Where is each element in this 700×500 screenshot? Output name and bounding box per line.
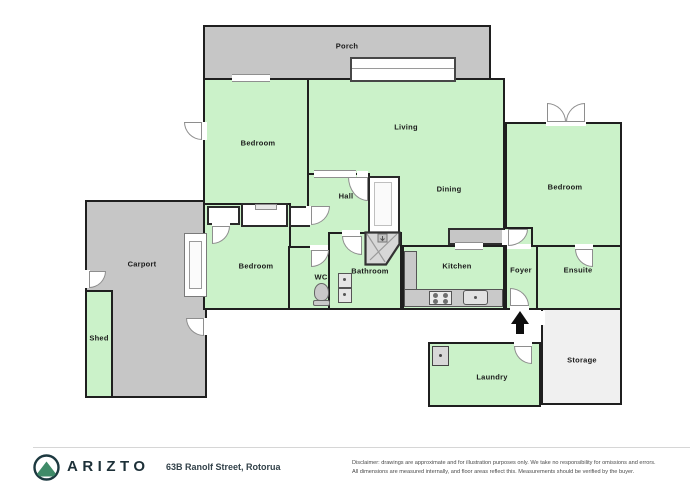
laundry-tub-icon [432,346,449,366]
cooktop-icon [429,291,452,305]
window-icon [455,242,483,250]
window-icon [232,74,270,82]
room-label-hall: Hall [339,192,354,201]
disclaimer-line-1: Disclaimer: drawings are approximate and… [352,459,672,468]
room-label-ensuite: Ensuite [564,266,593,275]
kitchen-counter-bottom [404,289,503,307]
burner-icon [433,293,438,298]
carport-window-pane [189,241,202,289]
property-address: 63B Ranolf Street, Rotorua [166,462,281,472]
disclaimer-text: Disclaimer: drawings are approximate and… [352,459,672,476]
room-label-bedroom-top-left: Bedroom [241,139,276,148]
brand-name: ARIZTO [67,458,150,475]
room-label-living: Living [394,123,418,132]
brand-logo-icon [33,454,60,481]
room-label-carport: Carport [128,260,157,269]
burner-icon [433,299,438,304]
floor-plan: Porch Bedroom Living Dining Hall Bedroom… [0,0,700,500]
cupboard-shelf [374,182,392,226]
room-label-storage: Storage [567,356,597,365]
disclaimer-line-2: All dimensions are measured internally, … [352,468,672,477]
kitchen-sink-icon [463,290,488,305]
sliding-door-icon [350,57,456,82]
room-label-foyer: Foyer [510,266,532,275]
toilet-icon [314,283,329,301]
room-label-wc: WC [315,273,328,282]
room-shed [85,290,113,398]
vanity-icon [338,273,352,288]
corner-shower-icon [364,231,401,266]
toilet-seat [313,300,330,306]
burner-icon [443,299,448,304]
footer-divider [33,447,690,448]
room-label-dining: Dining [437,185,462,194]
kitchen-counter-left [404,251,417,291]
french-door-right-icon [566,103,585,122]
wardrobe-icon [241,203,288,227]
room-label-shed: Shed [89,334,108,343]
door-arc-bedroom-exterior [184,122,202,140]
burner-icon [443,293,448,298]
room-label-bedroom-middle-left: Bedroom [239,262,274,271]
vanity-icon [338,288,352,303]
room-label-bathroom: Bathroom [351,267,388,276]
entrance-arrow-stem [516,323,524,334]
wall-opening [540,311,545,325]
french-door-left-icon [547,103,566,122]
room-label-porch: Porch [336,42,359,51]
room-label-bedroom-right: Bedroom [548,183,583,192]
room-label-laundry: Laundry [476,373,507,382]
room-label-kitchen: Kitchen [442,262,471,271]
